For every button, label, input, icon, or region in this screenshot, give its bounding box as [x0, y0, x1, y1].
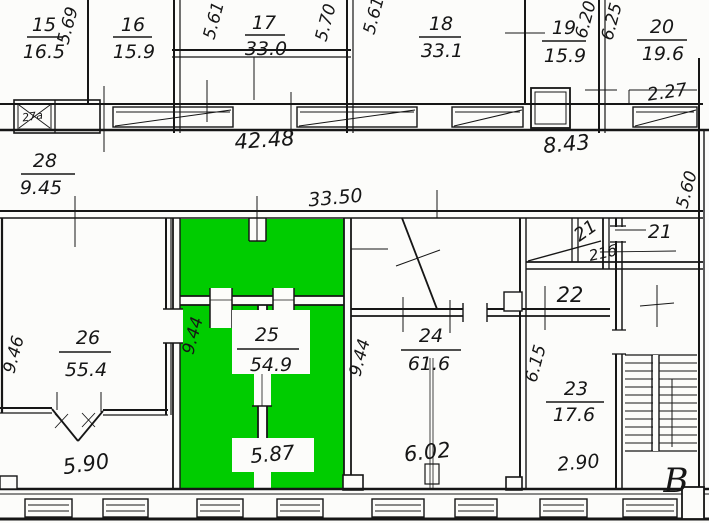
- room-17-area: 33.0: [245, 38, 287, 60]
- room-21-number: 21: [648, 221, 672, 243]
- room-20-number: 20: [650, 16, 674, 38]
- room-24-number: 24: [419, 325, 443, 347]
- dim-6-02: 6.02: [403, 438, 452, 467]
- room-19-area: 15.9: [544, 45, 586, 67]
- floor-plan-page: 15 16.5 16 15.9 17 33.0 18 33.1 19 15.9 …: [0, 0, 709, 523]
- room-22-number: 22: [557, 283, 584, 307]
- room-23-number: 23: [564, 378, 588, 400]
- room-18-area: 33.1: [421, 40, 463, 62]
- room-25-number: 25: [255, 324, 279, 346]
- room-20-area: 19.6: [642, 43, 684, 65]
- room-17-number: 17: [252, 12, 276, 34]
- dim-5-87: 5.87: [249, 440, 296, 468]
- room-15-area: 16.5: [23, 41, 65, 63]
- room-26-area: 55.4: [65, 359, 107, 381]
- room-25-area: 54.9: [250, 354, 292, 376]
- room-26-number: 26: [76, 327, 100, 349]
- section-letter-B: B: [663, 461, 689, 501]
- room-23-area: 17.6: [553, 404, 595, 426]
- room-16-area: 15.9: [113, 41, 155, 63]
- dim-2-90: 2.90: [556, 450, 600, 476]
- room-15-number: 15: [32, 14, 56, 36]
- room-18-number: 18: [429, 13, 453, 35]
- dim-42-48: 42.48: [234, 126, 296, 154]
- floor-plan-canvas: 15 16.5 16 15.9 17 33.0 18 33.1 19 15.9 …: [0, 0, 709, 523]
- room-28-area: 9.45: [20, 177, 62, 199]
- room-28-number: 28: [33, 150, 57, 172]
- room-24-area: 61.6: [408, 353, 450, 375]
- dim-8-43: 8.43: [542, 130, 591, 158]
- room-16-number: 16: [121, 14, 145, 36]
